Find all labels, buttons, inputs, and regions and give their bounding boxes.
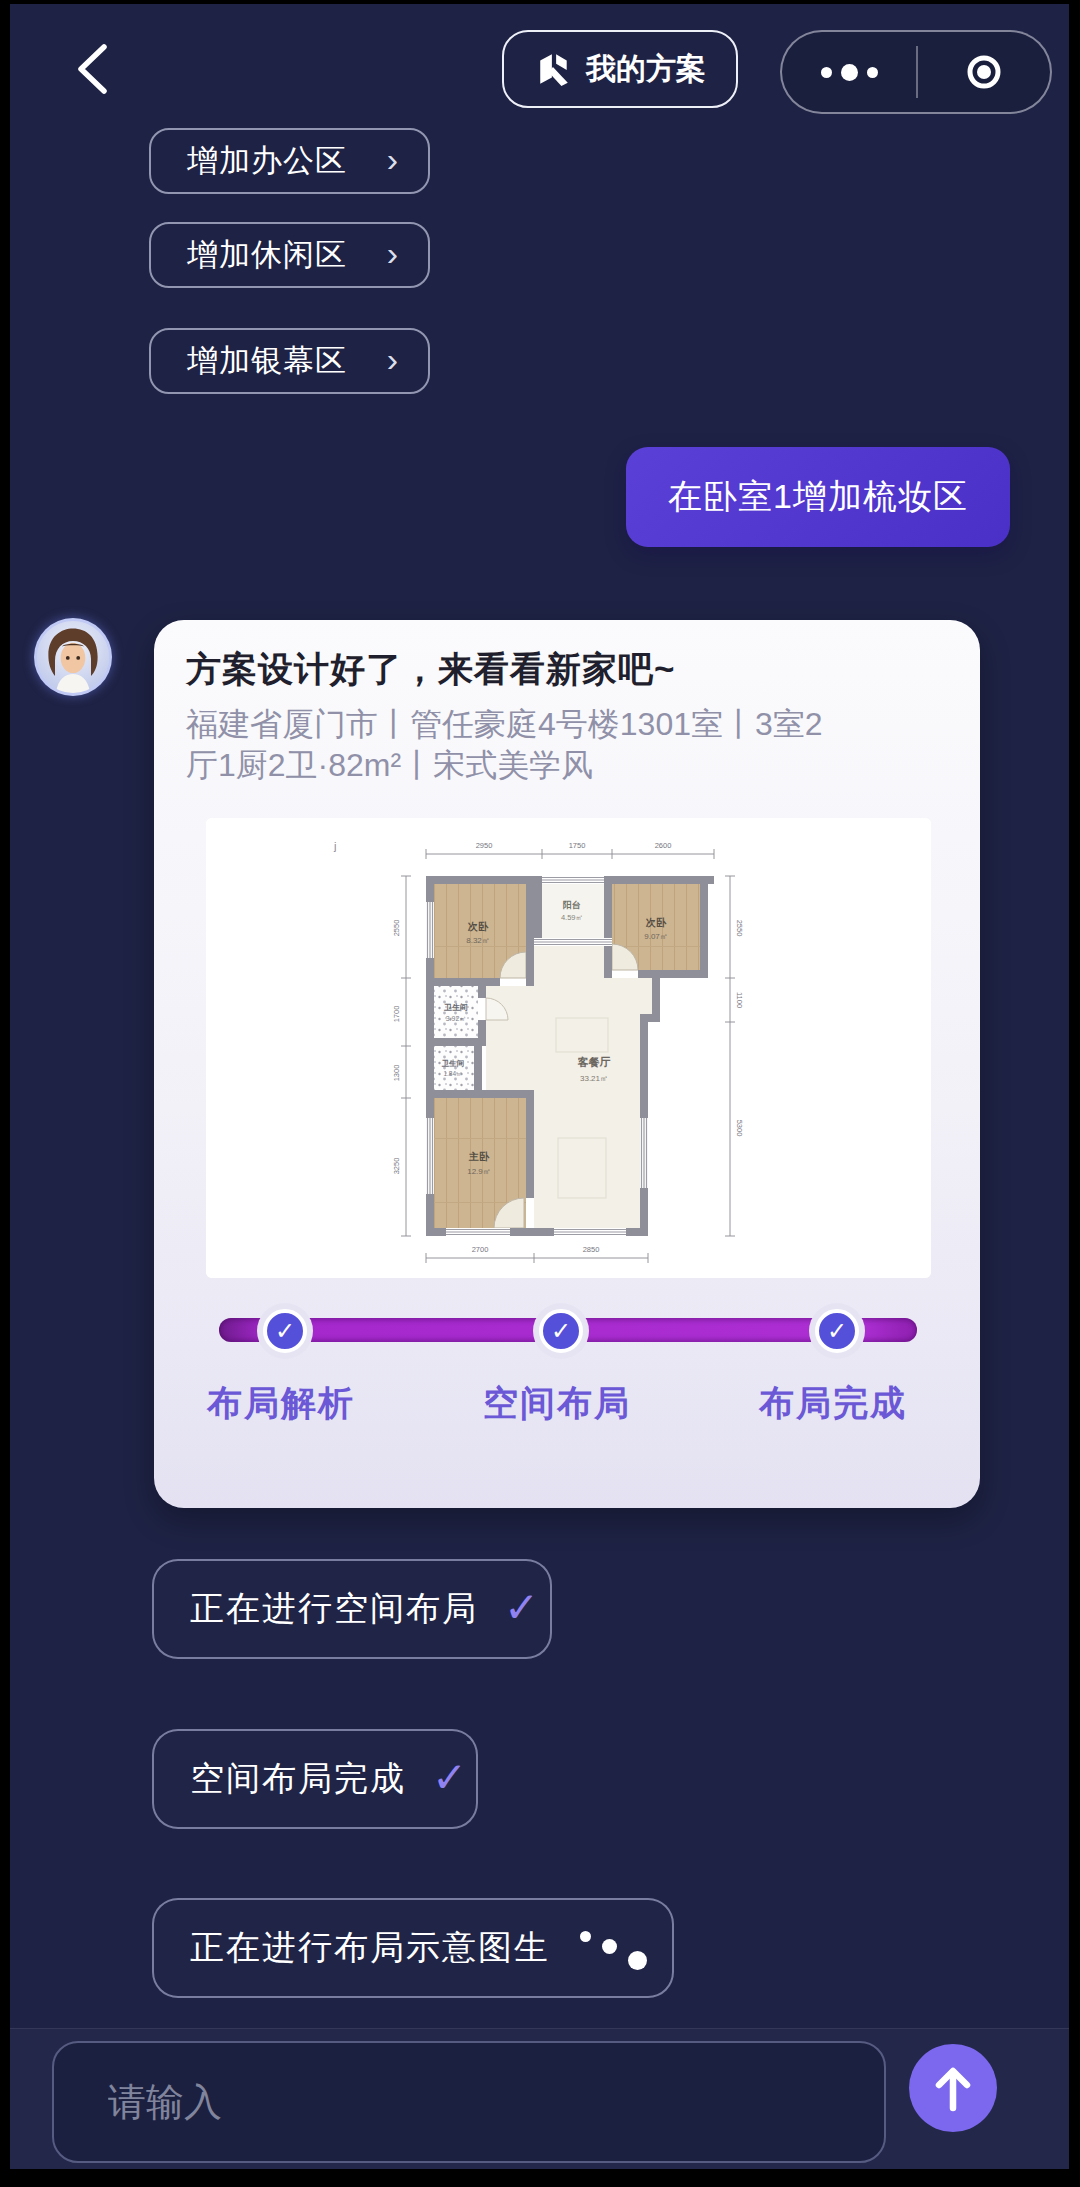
arrow-up-icon bbox=[931, 2064, 975, 2112]
room-label-bed-tr: 次卧 bbox=[645, 917, 667, 928]
composer-bar bbox=[0, 2028, 1080, 2170]
avatar-girl-icon bbox=[37, 621, 109, 693]
status-message-3: 正在进行布局示意图生 bbox=[152, 1898, 674, 1998]
letterbox-right bbox=[1069, 0, 1080, 2187]
room-bathroom-1 bbox=[434, 986, 478, 1038]
dim-top: 2600 bbox=[655, 841, 672, 850]
progress-step-label-2: 空间布局 bbox=[483, 1380, 631, 1427]
plan-logo-icon bbox=[534, 51, 574, 87]
room-area-living: 33.21㎡ bbox=[580, 1074, 608, 1083]
dim-left: 3250 bbox=[392, 1158, 401, 1175]
progress-step-label-3: 布局完成 bbox=[759, 1380, 907, 1427]
suggestion-label: 增加银幕区 bbox=[187, 340, 347, 382]
app-screen: 我的方案 增加办公区 › 增加休闲区 › 增加银幕区 › 在卧室1增加梳妆区 bbox=[0, 0, 1080, 2187]
status-text: 正在进行布局示意图生 bbox=[190, 1925, 550, 1971]
dim-left: 2550 bbox=[392, 920, 401, 937]
room-label-bed-tl: 次卧 bbox=[467, 921, 489, 932]
suggestion-add-office[interactable]: 增加办公区 › bbox=[149, 128, 430, 194]
check-icon: ✓ bbox=[551, 1317, 571, 1345]
room-label-balcony: 阳台 bbox=[563, 900, 581, 910]
progress-step-label-1: 布局解析 bbox=[207, 1380, 355, 1427]
room-area-master: 12.9㎡ bbox=[467, 1167, 491, 1176]
room-area-bath1: 3.92㎡ bbox=[446, 1015, 467, 1022]
send-button[interactable] bbox=[909, 2044, 997, 2132]
user-message-bubble: 在卧室1增加梳妆区 bbox=[626, 447, 1010, 547]
check-icon: ✓ bbox=[504, 1583, 539, 1632]
more-options-button[interactable] bbox=[782, 64, 916, 81]
chevron-right-icon: › bbox=[387, 236, 398, 270]
check-icon: ✓ bbox=[432, 1753, 467, 1802]
status-text: 正在进行空间布局 bbox=[190, 1586, 478, 1632]
suggestion-label: 增加休闲区 bbox=[187, 234, 347, 276]
target-circle-icon bbox=[962, 50, 1006, 94]
room-label-living: 客餐厅 bbox=[577, 1056, 611, 1068]
dim-bottom: 2700 bbox=[472, 1245, 489, 1254]
assistant-avatar bbox=[34, 618, 112, 696]
status-message-1: 正在进行空间布局 ✓ bbox=[152, 1559, 552, 1659]
room-label-bath2: 卫生间 bbox=[441, 1059, 465, 1068]
card-subtitle-line2: 厅1厨2卫·82m²丨宋式美学风 bbox=[186, 745, 958, 786]
status-text: 空间布局完成 bbox=[190, 1756, 406, 1802]
card-subtitle: 福建省厦门市丨管任豪庭4号楼1301室丨3室2 厅1厨2卫·82m²丨宋式美学风 bbox=[186, 704, 958, 786]
user-message-text: 在卧室1增加梳妆区 bbox=[668, 474, 968, 520]
progress-check-2: ✓ bbox=[539, 1309, 583, 1353]
room-living-dining bbox=[534, 946, 652, 1228]
progress-check-1: ✓ bbox=[263, 1309, 307, 1353]
dim-right: 5300 bbox=[735, 1120, 744, 1137]
close-indicator-button[interactable] bbox=[918, 50, 1050, 94]
dim-left: 1300 bbox=[392, 1065, 401, 1082]
letterbox-left bbox=[0, 0, 10, 2187]
more-dot-icon bbox=[821, 67, 832, 78]
room-label-bath1: 卫生间 bbox=[443, 1003, 468, 1012]
letterbox-bottom bbox=[0, 2169, 1080, 2187]
room-bathroom-2 bbox=[434, 1046, 474, 1090]
more-dot-icon bbox=[867, 67, 878, 78]
room-area-bath2: 1.84㎡ bbox=[443, 1070, 462, 1077]
room-label-master: 主卧 bbox=[468, 1151, 490, 1162]
my-plan-button[interactable]: 我的方案 bbox=[502, 30, 738, 108]
chevron-right-icon: › bbox=[387, 342, 398, 376]
room-area-bed-tr: 9.07㎡ bbox=[644, 932, 668, 941]
dim-right: 1100 bbox=[735, 992, 744, 1008]
check-icon: ✓ bbox=[275, 1317, 295, 1345]
room-area-balcony: 4.59㎡ bbox=[561, 913, 583, 922]
miniprogram-capsule bbox=[780, 30, 1052, 114]
chevron-right-icon: › bbox=[387, 142, 398, 176]
floorplan-image[interactable]: j bbox=[206, 818, 931, 1278]
letterbox-top bbox=[0, 0, 1080, 4]
design-result-card: 方案设计好了，来看看新家吧~ 福建省厦门市丨管任豪庭4号楼1301室丨3室2 厅… bbox=[154, 620, 980, 1508]
loading-dots-icon bbox=[580, 1939, 647, 1958]
dim-bottom: 2850 bbox=[583, 1245, 600, 1254]
floorplan-corner-mark: j bbox=[333, 840, 336, 852]
progress-check-3: ✓ bbox=[815, 1309, 859, 1353]
dim-left: 1700 bbox=[392, 1006, 401, 1023]
message-input[interactable] bbox=[52, 2041, 886, 2163]
my-plan-label: 我的方案 bbox=[586, 49, 706, 90]
room-balcony bbox=[542, 884, 604, 938]
dim-right: 2550 bbox=[735, 920, 744, 937]
card-title: 方案设计好了，来看看新家吧~ bbox=[186, 646, 675, 693]
floorplan-drawing: j bbox=[206, 818, 931, 1278]
dim-top: 1750 bbox=[569, 841, 586, 850]
back-chevron-icon bbox=[70, 40, 118, 98]
check-icon: ✓ bbox=[827, 1317, 847, 1345]
back-button[interactable] bbox=[70, 40, 118, 98]
card-subtitle-line1: 福建省厦门市丨管任豪庭4号楼1301室丨3室2 bbox=[186, 704, 958, 745]
suggestion-add-leisure[interactable]: 增加休闲区 › bbox=[149, 222, 430, 288]
more-dot-icon bbox=[841, 64, 858, 81]
status-message-2: 空间布局完成 ✓ bbox=[152, 1729, 478, 1829]
suggestion-label: 增加办公区 bbox=[187, 140, 347, 182]
suggestion-add-screen[interactable]: 增加银幕区 › bbox=[149, 328, 430, 394]
room-area-bed-tl: 8.32㎡ bbox=[466, 936, 490, 945]
dim-top: 2950 bbox=[476, 841, 493, 850]
